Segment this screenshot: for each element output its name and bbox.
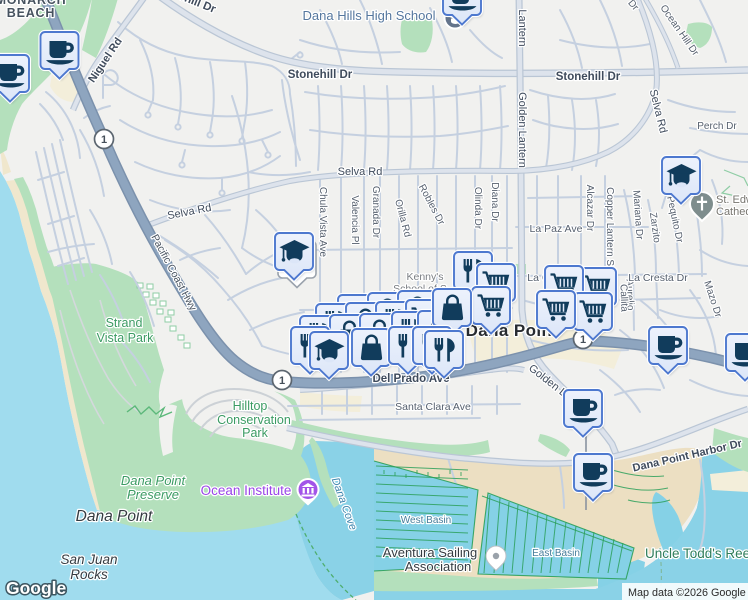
svg-text:Strand: Strand	[106, 316, 143, 330]
svg-text:Valencia Pl: Valencia Pl	[349, 195, 360, 244]
svg-text:Lantern: Lantern	[516, 9, 528, 46]
svg-text:BEACH: BEACH	[7, 6, 55, 20]
svg-text:Stonehill Dr: Stonehill Dr	[288, 69, 353, 81]
svg-text:Hilltop: Hilltop	[233, 399, 268, 413]
svg-text:1: 1	[279, 375, 285, 387]
svg-text:Granada Dr: Granada Dr	[370, 186, 381, 239]
svg-text:Cathed: Cathed	[716, 206, 748, 218]
svg-text:Golden Lantern: Golden Lantern	[516, 92, 528, 168]
svg-text:1: 1	[101, 134, 107, 146]
svg-text:St. Edw: St. Edw	[716, 194, 748, 206]
svg-text:Dana Point: Dana Point	[76, 508, 153, 525]
svg-text:Chula Vista Ave: Chula Vista Ave	[317, 187, 328, 258]
svg-text:West Basin: West Basin	[401, 515, 451, 526]
svg-text:La Cresta Dr: La Cresta Dr	[628, 272, 688, 284]
svg-text:Preserve: Preserve	[127, 487, 179, 502]
svg-text:Google: Google	[6, 578, 67, 598]
svg-text:Olinda Dr: Olinda Dr	[472, 187, 483, 230]
svg-text:Perch Dr: Perch Dr	[697, 121, 737, 132]
svg-text:Santa Clara Ave: Santa Clara Ave	[395, 401, 471, 413]
svg-text:Association: Association	[405, 559, 471, 574]
svg-text:Uncle Todd's Ree: Uncle Todd's Ree	[645, 546, 748, 561]
svg-text:Rocks: Rocks	[70, 567, 108, 582]
svg-text:Vista Park: Vista Park	[97, 331, 154, 345]
svg-text:Conservation: Conservation	[217, 413, 291, 427]
svg-text:Aventura Sailing: Aventura Sailing	[383, 545, 477, 560]
svg-text:San Juan: San Juan	[60, 552, 117, 567]
svg-text:La Paz Ave: La Paz Ave	[530, 223, 583, 235]
svg-text:Stonehill Dr: Stonehill Dr	[556, 71, 621, 83]
svg-text:East Basin: East Basin	[532, 548, 580, 559]
svg-text:Park: Park	[242, 426, 268, 440]
svg-text:Alcazar Dr: Alcazar Dr	[584, 185, 595, 232]
svg-text:1: 1	[580, 334, 586, 346]
svg-text:Del Prado Ave: Del Prado Ave	[372, 373, 449, 385]
svg-text:Callita: Callita	[618, 284, 630, 313]
svg-text:Ocean Institute: Ocean Institute	[201, 483, 292, 498]
svg-text:Copper Lantern St: Copper Lantern St	[604, 187, 615, 269]
svg-text:Map data ©2026 Google: Map data ©2026 Google	[628, 587, 746, 599]
svg-text:Dana Point: Dana Point	[121, 473, 187, 488]
svg-text:Kenny's: Kenny's	[406, 271, 443, 283]
svg-text:Dana Hills High School: Dana Hills High School	[303, 8, 436, 23]
svg-text:Selva Rd: Selva Rd	[338, 166, 383, 178]
svg-text:Diana Dr: Diana Dr	[489, 182, 500, 222]
